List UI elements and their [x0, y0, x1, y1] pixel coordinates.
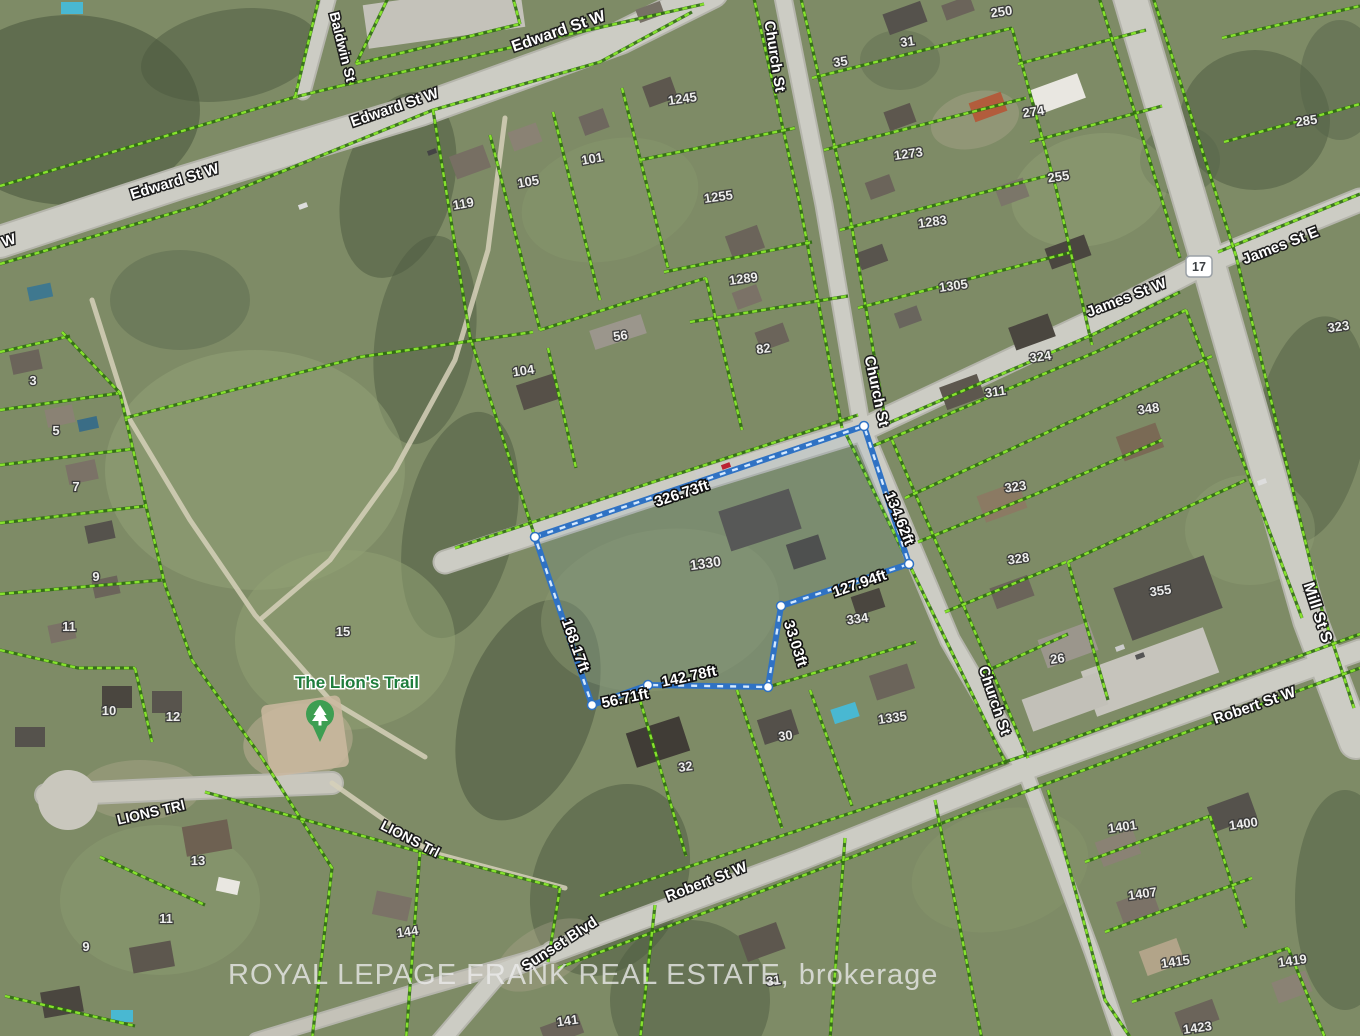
parcel-number: 144	[396, 923, 420, 941]
parcel-number: 5	[52, 423, 59, 438]
parcel-number: 32	[677, 758, 693, 775]
parcel-vertex-handle[interactable]	[588, 701, 597, 710]
parcel-number: 323	[1327, 318, 1351, 336]
map-image: Edward St WEdward St WEdward St WWBaldwi…	[0, 0, 1360, 1036]
satellite-map-canvas[interactable]: Edward St WEdward St WEdward St WWBaldwi…	[0, 0, 1360, 1036]
parcel-vertex-handle[interactable]	[777, 602, 786, 611]
parcel-number: 334	[846, 610, 870, 628]
parcel-number: 3	[29, 373, 36, 388]
parcel-number: 7	[72, 479, 79, 494]
parcel-number: 1423	[1182, 1018, 1213, 1036]
parcel-number: 9	[82, 939, 89, 954]
parcel-number: 10	[102, 703, 116, 718]
parcel-number: 274	[1022, 103, 1046, 121]
parcel-number: 311	[984, 383, 1007, 401]
parcel-number: 255	[1047, 168, 1071, 186]
parcel-number: 250	[990, 3, 1014, 21]
parcel-number: 35	[832, 53, 848, 70]
parcel-number: 12	[166, 709, 180, 724]
parcel-number: 31	[899, 33, 915, 50]
brokerage-watermark: ROYAL LEPAGE FRANK REAL ESTATE, brokerag…	[228, 959, 938, 991]
parcel-vertex-handle[interactable]	[860, 422, 869, 431]
parcel-number: 9	[92, 569, 99, 584]
parcel-vertex-handle[interactable]	[764, 683, 773, 692]
parcel-number: 30	[777, 727, 793, 744]
highway-17-number: 17	[1192, 260, 1206, 274]
parcel-number: 104	[512, 362, 536, 380]
parcel-number: 285	[1295, 112, 1319, 130]
watermark-text: ROYAL LEPAGE FRANK REAL ESTATE, brokerag…	[228, 959, 938, 991]
parcel-number: 15	[336, 624, 350, 639]
parcel-number: 348	[1137, 400, 1161, 418]
parcel-number: 11	[159, 911, 173, 926]
parcel-number: 355	[1149, 582, 1173, 600]
route-badge-17: 17	[1186, 256, 1212, 277]
parcel-vertex-handle[interactable]	[531, 533, 540, 542]
parcel-number: 82	[755, 340, 771, 357]
parcel-number: 324	[1029, 348, 1053, 366]
parcel-number: 56	[612, 327, 628, 344]
parcel-number: 11	[62, 619, 76, 634]
parcel-number: 323	[1004, 478, 1028, 496]
parcel-number: 26	[1049, 650, 1065, 667]
parcel-number: 13	[191, 853, 205, 868]
parcel-number: 141	[556, 1012, 580, 1030]
park-poi-label: The Lion's Trail	[295, 673, 419, 692]
parcel-number: 328	[1007, 550, 1031, 568]
parcel-vertex-handle[interactable]	[905, 560, 914, 569]
